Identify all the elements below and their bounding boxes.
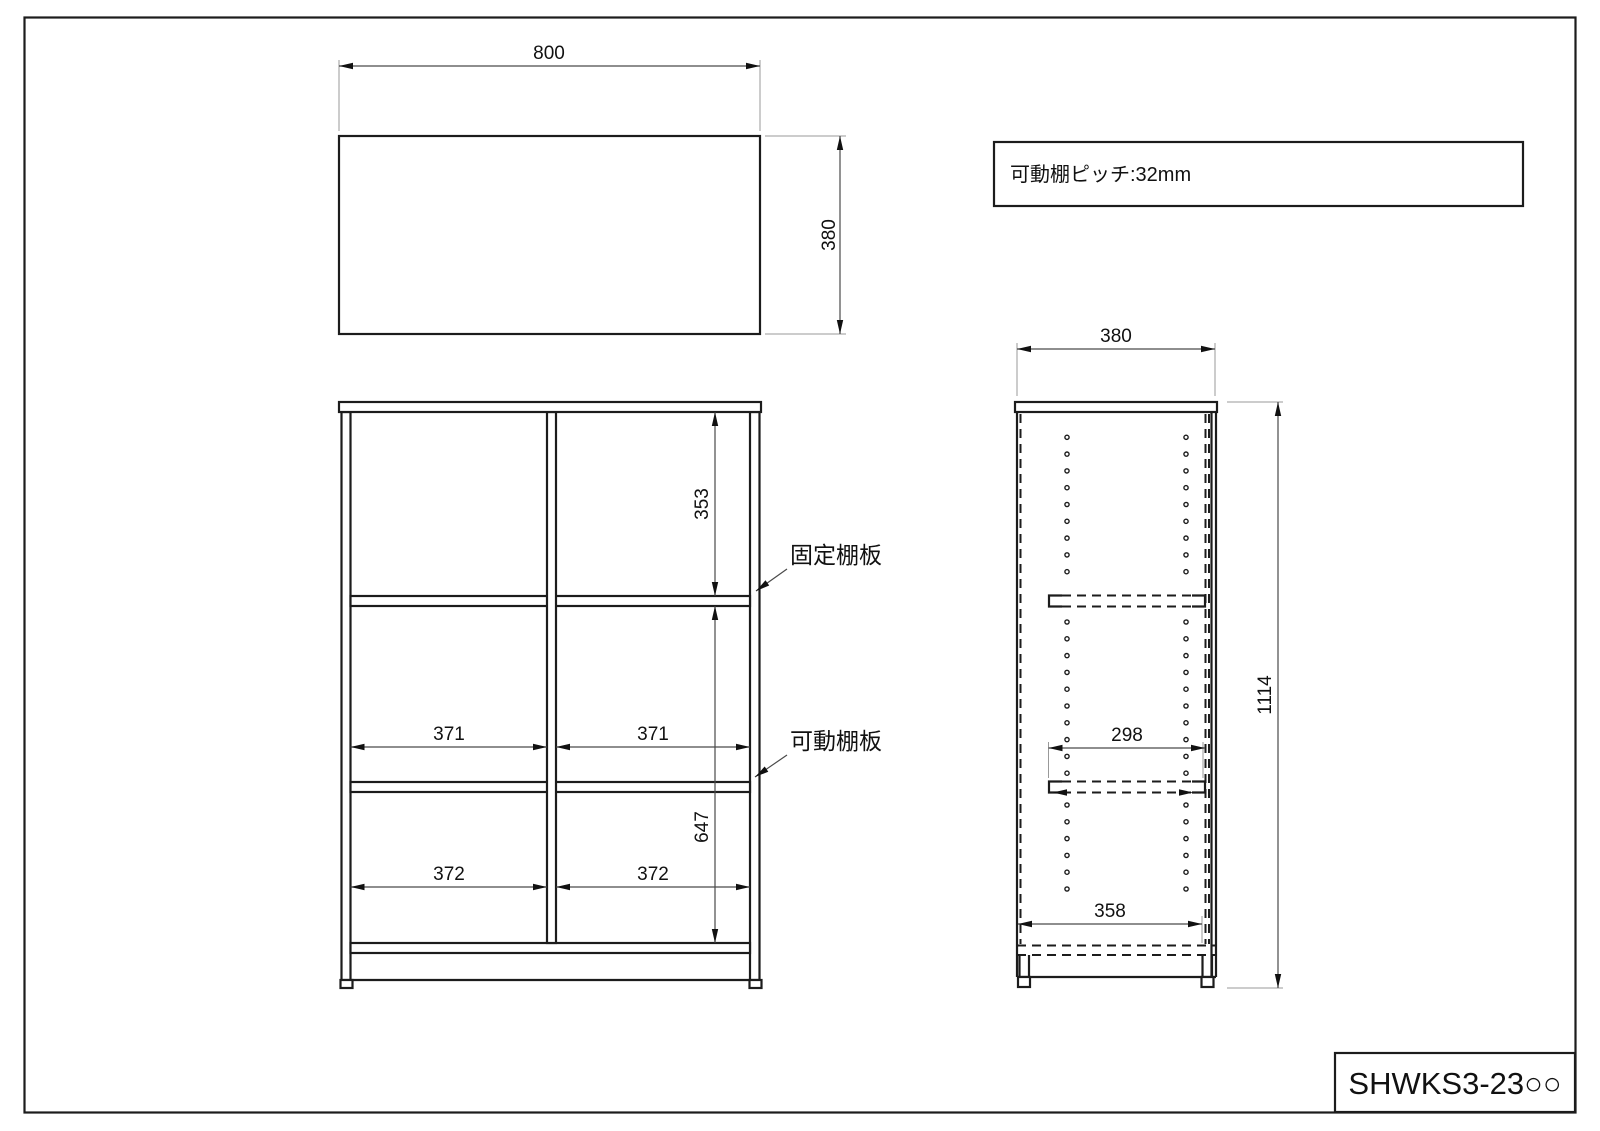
shelf-pin-hole — [1065, 853, 1069, 857]
title-block: SHWKS3-23○○ — [1335, 1053, 1575, 1112]
shelf-pin-hole — [1065, 803, 1069, 807]
shelf-pin-right — [1179, 789, 1193, 795]
front-left-panel — [342, 412, 351, 980]
shelf-pin-hole — [1184, 721, 1188, 725]
dim-front-372-left: 372 — [351, 864, 548, 890]
dim-label-372-right: 372 — [637, 864, 669, 885]
shelf-pin-hole — [1065, 620, 1069, 624]
shelf-pin-hole — [1065, 502, 1069, 506]
shelf-pin-hole — [1184, 820, 1188, 824]
side-body-outline — [1017, 412, 1216, 977]
front-right-panel — [750, 412, 760, 980]
dim-label-372-left: 372 — [433, 864, 465, 885]
shelf-pin-hole — [1065, 486, 1069, 490]
shelf-pin-left — [1053, 789, 1067, 795]
shelf-pin-hole — [1065, 452, 1069, 456]
shelf-pin-hole — [1184, 754, 1188, 758]
side-movable-shelf-hidden — [1049, 782, 1205, 796]
side-back-panel-hidden — [1206, 414, 1210, 944]
dim-label-371-right: 371 — [637, 724, 669, 745]
dim-side-298: 298 — [1049, 725, 1206, 778]
shelf-pin-hole — [1065, 670, 1069, 674]
dim-front-371-right: 371 — [556, 724, 750, 750]
shelf-pin-hole — [1065, 637, 1069, 641]
shelf-pin-hole — [1184, 670, 1188, 674]
side-bottom-shelf-hidden — [1017, 946, 1216, 956]
dim-label-800: 800 — [533, 43, 565, 64]
dim-label-353: 353 — [692, 488, 713, 520]
shelf-pin-hole — [1065, 738, 1069, 742]
shelf-pin-hole — [1184, 887, 1188, 891]
shelf-pin-hole — [1184, 519, 1188, 523]
front-top-panel — [339, 402, 761, 412]
front-right-foot — [750, 980, 762, 988]
shelf-pin-hole — [1184, 536, 1188, 540]
shelf-pin-hole — [1184, 469, 1188, 473]
shelf-pin-hole — [1184, 654, 1188, 658]
fixed-shelf-label: 固定棚板 — [790, 542, 882, 568]
side-left-foot — [1018, 977, 1030, 987]
dim-label-647: 647 — [692, 811, 713, 843]
shelf-pin-hole — [1065, 654, 1069, 658]
shelf-pin-hole — [1184, 837, 1188, 841]
top-view: 800 380 — [339, 43, 846, 334]
dim-label-380-side: 380 — [1100, 326, 1132, 347]
drawing-sheet: 800 380 353 647 — [0, 0, 1600, 1131]
shelf-pin-hole — [1065, 870, 1069, 874]
note-box: 可動棚ピッチ:32mm — [994, 142, 1523, 206]
front-center-divider — [547, 412, 556, 943]
shelf-pin-hole — [1065, 704, 1069, 708]
shelf-pin-hole — [1065, 469, 1069, 473]
shelf-pin-holes — [1065, 435, 1188, 891]
front-bottom-shelf — [351, 943, 751, 953]
shelf-pin-hole — [1184, 738, 1188, 742]
dim-label-380-top: 380 — [819, 219, 840, 251]
shelf-pin-hole — [1184, 803, 1188, 807]
shelf-pin-hole — [1184, 553, 1188, 557]
dim-label-298: 298 — [1111, 725, 1143, 746]
technical-drawing: 800 380 353 647 — [0, 0, 1600, 1131]
dim-side-380: 380 — [1017, 326, 1215, 396]
shelf-pin-hole — [1065, 820, 1069, 824]
shelf-pin-hole — [1184, 704, 1188, 708]
dim-front-372-right: 372 — [556, 864, 750, 890]
dim-front-371-left: 371 — [351, 724, 548, 750]
shelf-pin-hole — [1065, 553, 1069, 557]
leader-movable-shelf: 可動棚板 — [755, 728, 882, 777]
dim-label-358: 358 — [1094, 901, 1126, 922]
shelf-pin-hole — [1065, 687, 1069, 691]
shelf-pin-hole — [1184, 452, 1188, 456]
model-number: SHWKS3-23○○ — [1348, 1066, 1561, 1101]
dim-label-1114: 1114 — [1255, 675, 1276, 715]
top-view-outline — [339, 136, 760, 334]
shelf-pin-hole — [1065, 754, 1069, 758]
front-left-foot — [341, 980, 353, 988]
dim-top-width: 800 — [339, 43, 760, 131]
dim-top-depth: 380 — [765, 136, 846, 334]
dim-front-353: 353 — [692, 412, 718, 596]
dim-front-647: 647 — [692, 606, 718, 943]
shelf-pin-hole — [1184, 687, 1188, 691]
movable-shelf-label: 可動棚板 — [790, 728, 882, 754]
shelf-pin-hole — [1065, 536, 1069, 540]
shelf-pin-hole — [1184, 570, 1188, 574]
shelf-pin-hole — [1065, 519, 1069, 523]
dim-label-371-left: 371 — [433, 724, 465, 745]
shelf-pin-hole — [1184, 853, 1188, 857]
shelf-pin-hole — [1184, 870, 1188, 874]
leader-fixed-shelf: 固定棚板 — [756, 542, 882, 591]
shelf-pin-hole — [1065, 435, 1069, 439]
shelf-pin-hole — [1184, 771, 1188, 775]
shelf-pin-hole — [1065, 887, 1069, 891]
note-text: 可動棚ピッチ:32mm — [1010, 163, 1191, 186]
dim-side-358: 358 — [1018, 901, 1202, 943]
shelf-pin-hole — [1065, 771, 1069, 775]
shelf-pin-hole — [1184, 435, 1188, 439]
side-right-foot — [1202, 977, 1214, 987]
front-view: 353 647 371 371 372 — [339, 402, 882, 988]
shelf-pin-hole — [1184, 502, 1188, 506]
shelf-pin-hole — [1065, 721, 1069, 725]
shelf-pin-hole — [1184, 486, 1188, 490]
side-fixed-shelf-hidden — [1049, 596, 1205, 607]
shelf-pin-hole — [1065, 837, 1069, 841]
side-feet-lines — [1020, 955, 1213, 977]
side-top-panel — [1015, 402, 1217, 412]
dim-side-1114: 1114 — [1227, 402, 1283, 988]
shelf-pin-hole — [1184, 637, 1188, 641]
side-view: 380 298 358 1114 — [1015, 326, 1283, 988]
shelf-pin-hole — [1065, 570, 1069, 574]
shelf-pin-hole — [1184, 620, 1188, 624]
